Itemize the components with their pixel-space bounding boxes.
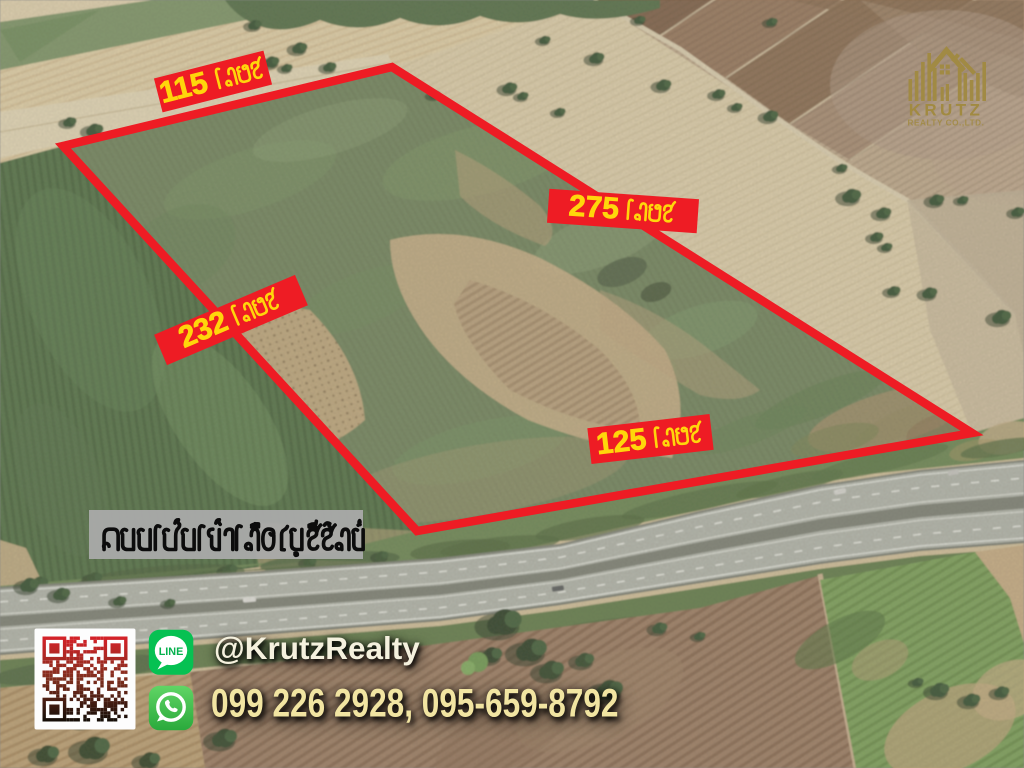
svg-text:099 226 2928, 095-659-8792: 099 226 2928, 095-659-8792 — [211, 680, 619, 725]
svg-text:275: 275 — [568, 189, 620, 225]
svg-text:KRUTZ: KRUTZ — [909, 101, 984, 120]
svg-text:REALTY CO.,LTD.: REALTY CO.,LTD. — [908, 119, 985, 128]
svg-text:@KrutzRealty: @KrutzRealty — [214, 630, 420, 666]
svg-text:LINE: LINE — [159, 646, 184, 658]
svg-text:125: 125 — [595, 423, 649, 462]
